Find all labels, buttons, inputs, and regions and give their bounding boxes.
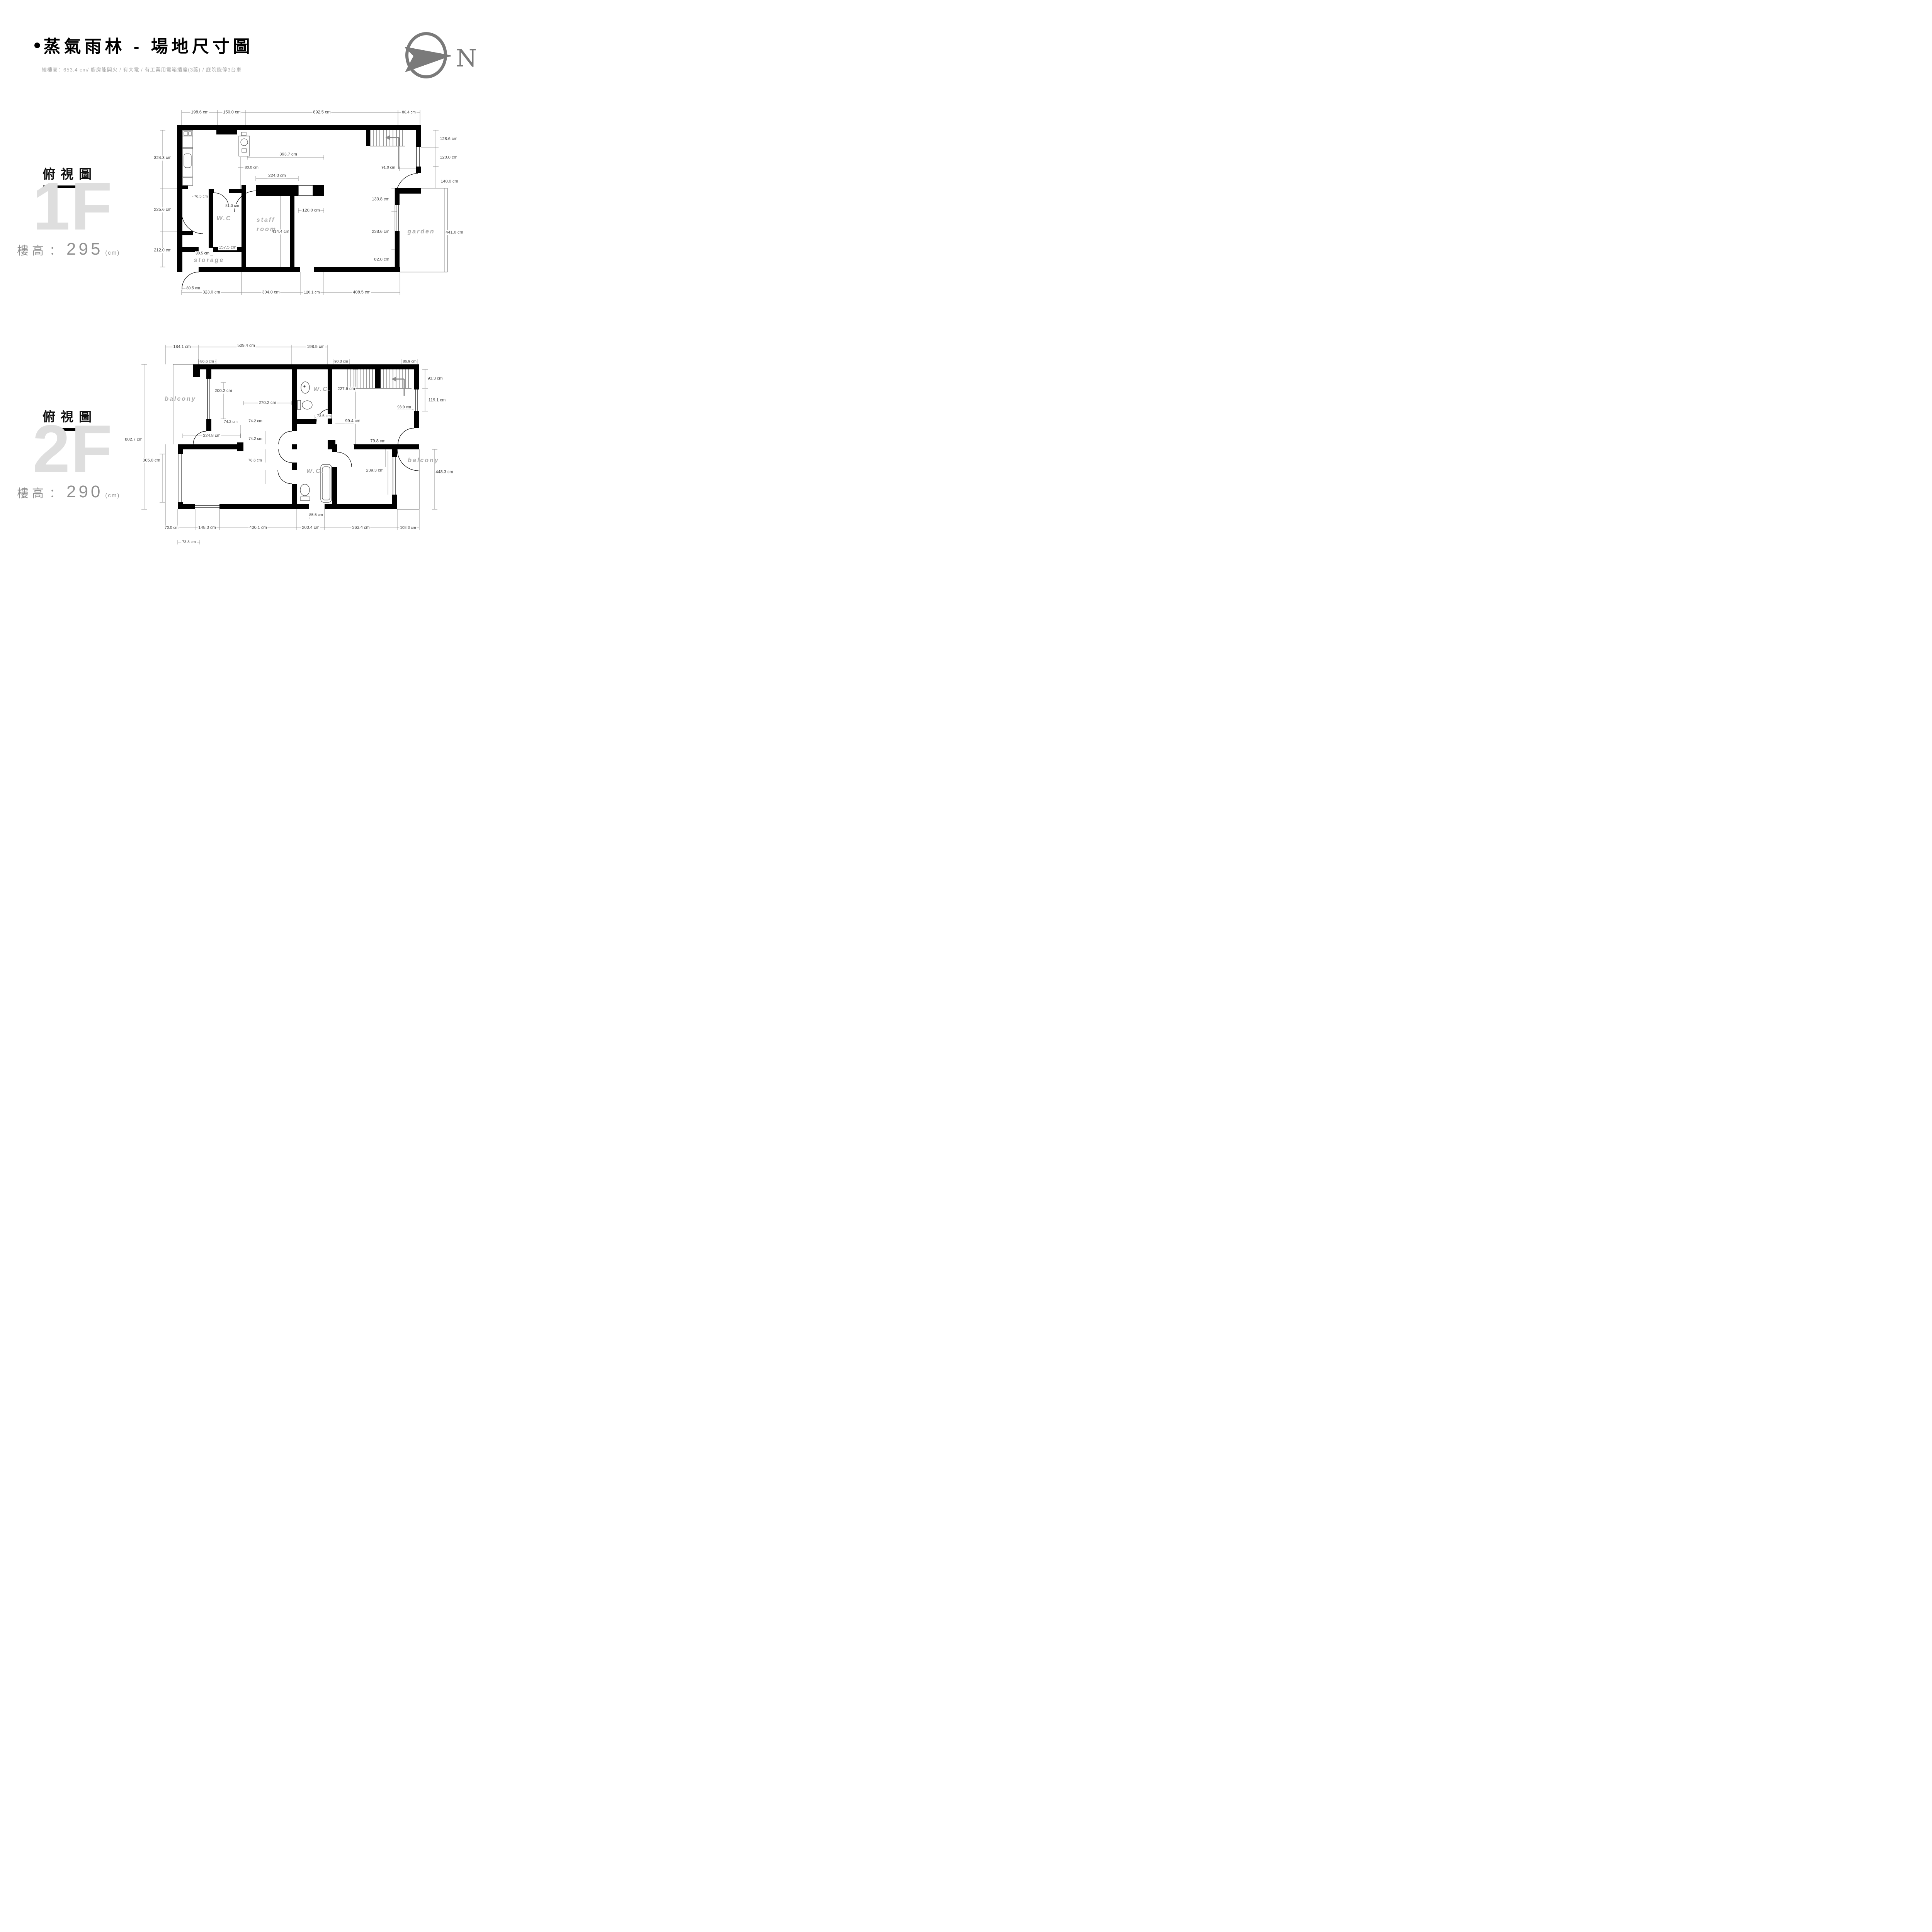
floor2-room-labels: balconyW.C.W.C.balcony: [0, 0, 488, 598]
room-label: W.C.: [313, 386, 332, 393]
page: N: [0, 0, 488, 598]
room-label: balcony: [164, 396, 197, 403]
room-label: W.C.: [306, 468, 325, 475]
room-label: balcony: [407, 457, 440, 464]
